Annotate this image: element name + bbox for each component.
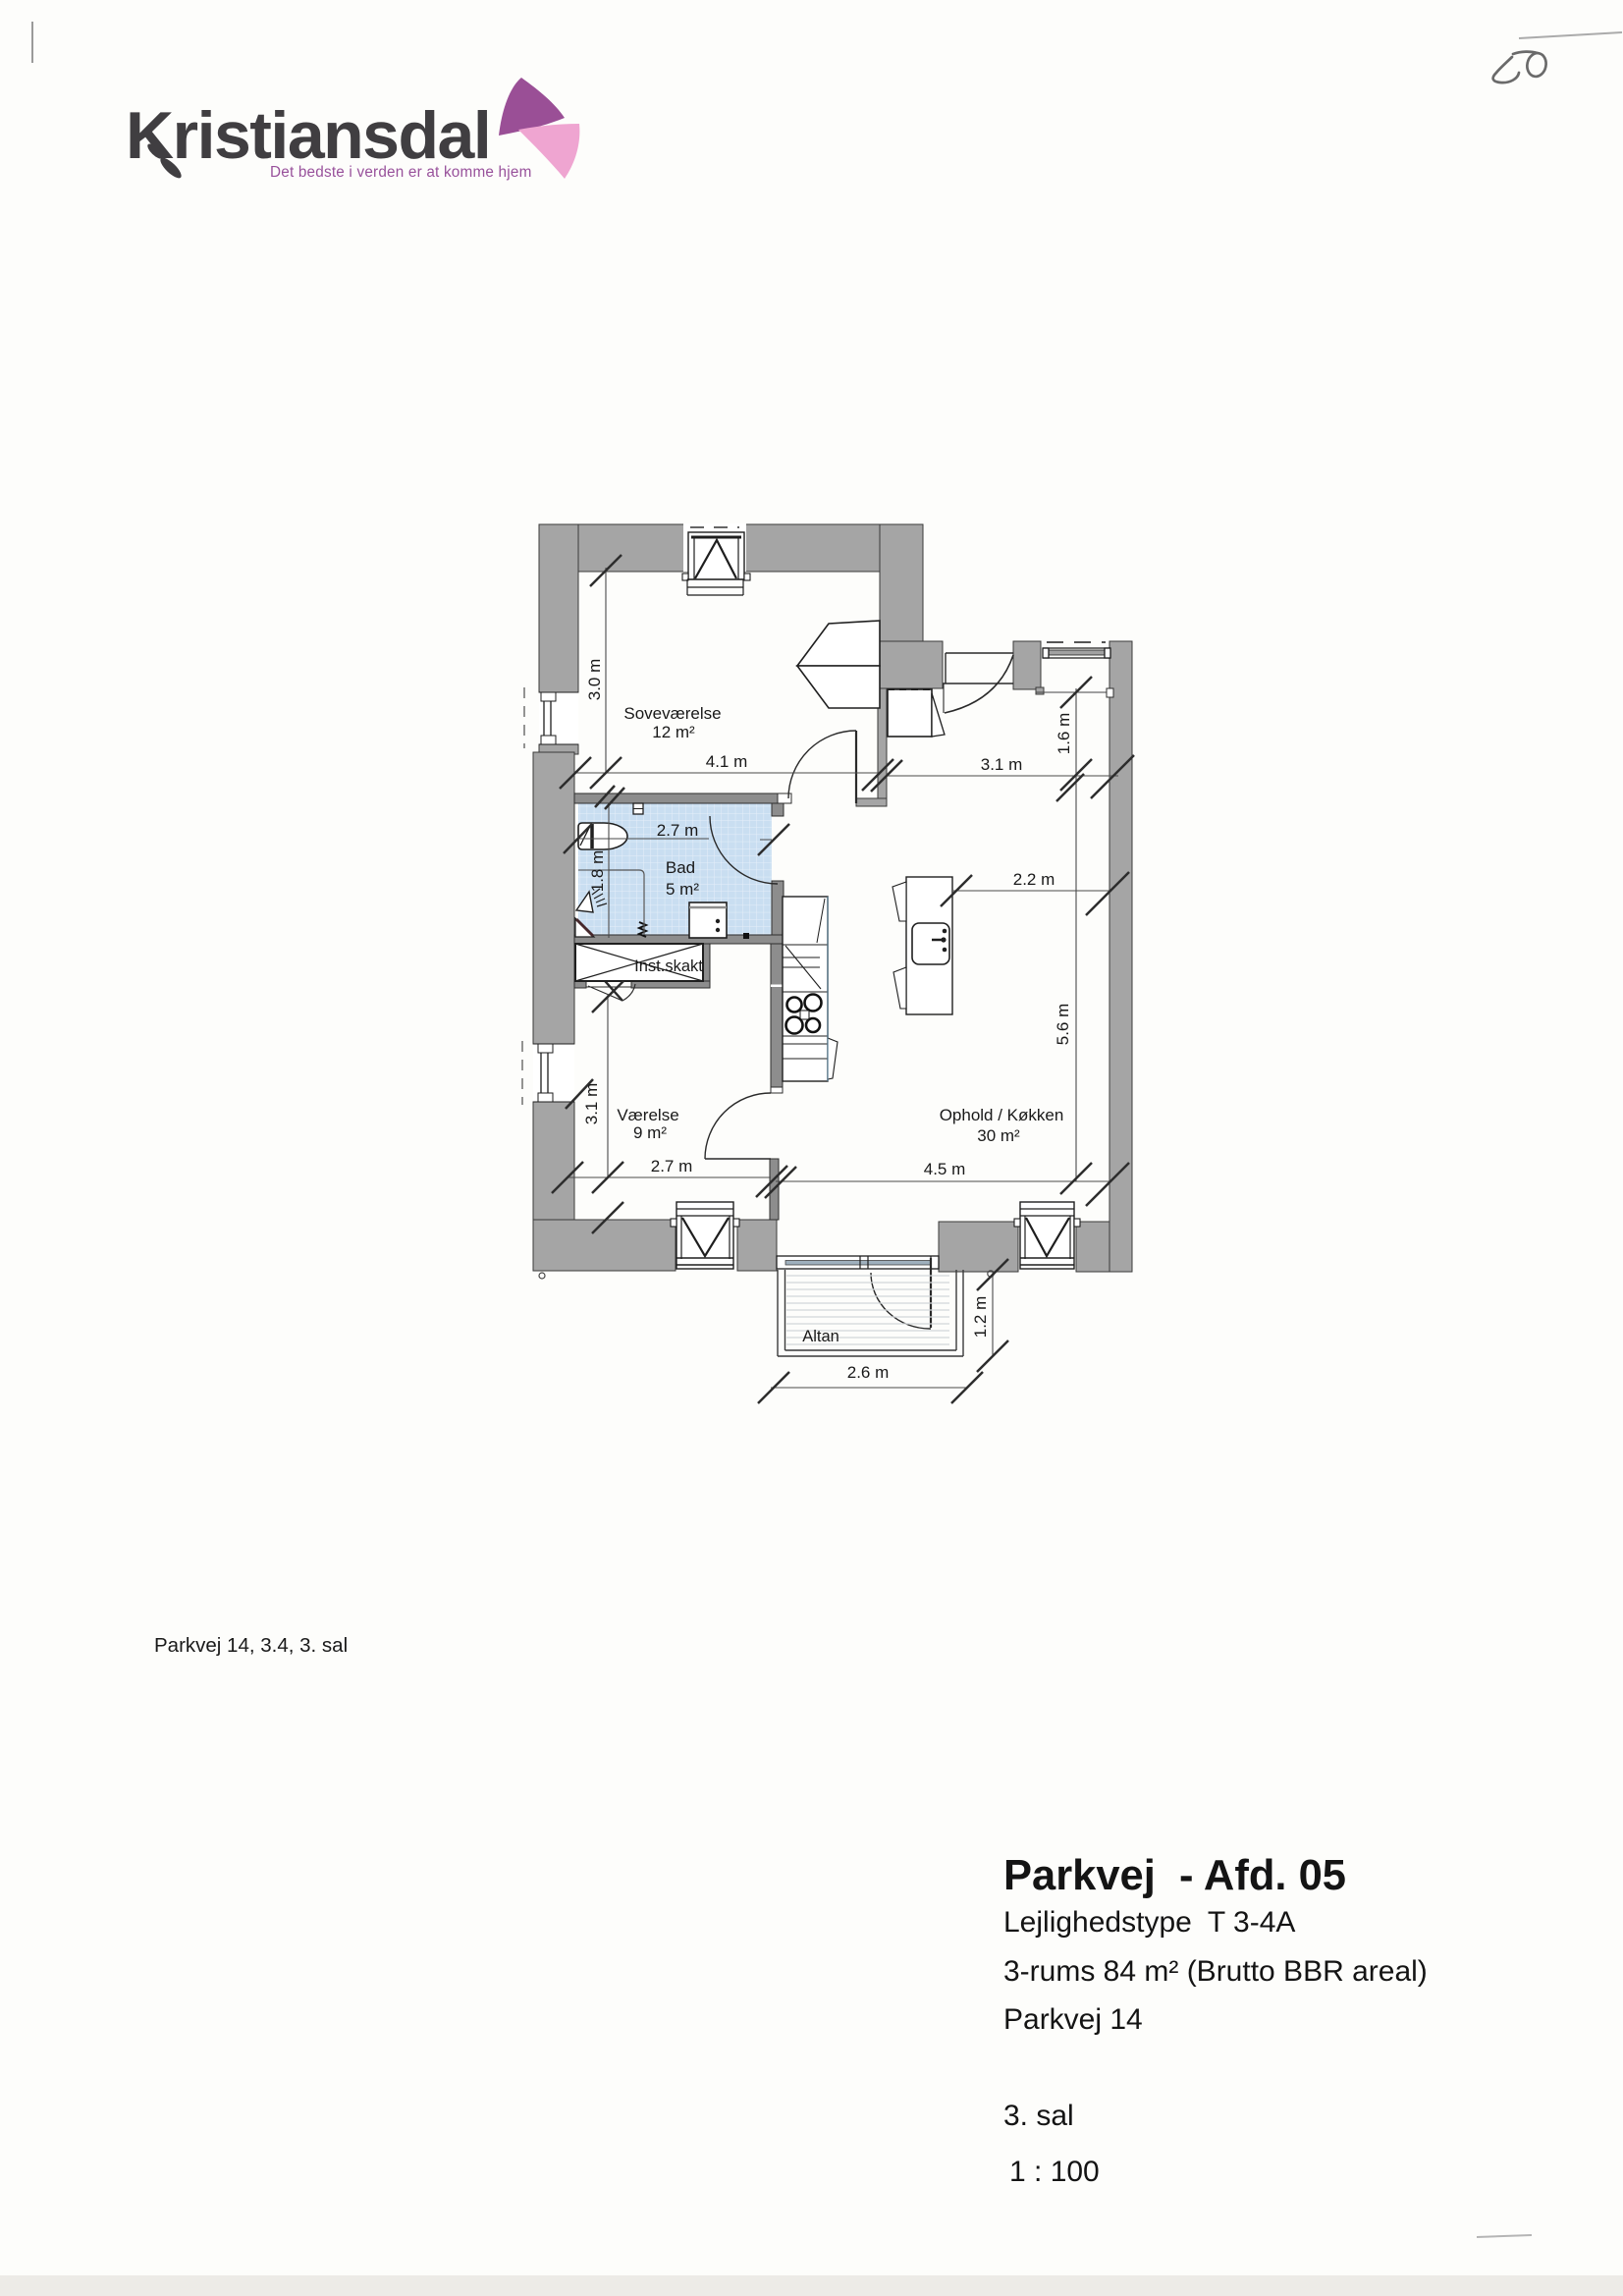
svg-text:Parkvej 14: Parkvej 14 bbox=[1003, 2003, 1143, 2036]
svg-text:Bad: Bad bbox=[666, 858, 695, 877]
svg-text:3.0 m: 3.0 m bbox=[585, 659, 604, 701]
svg-text:1.6 m: 1.6 m bbox=[1055, 713, 1073, 755]
svg-text:Værelse: Værelse bbox=[617, 1106, 678, 1124]
svg-text:1.8 m: 1.8 m bbox=[588, 850, 607, 893]
svg-text:3-rums 84 m² (Brutto BBR areal: 3-rums 84 m² (Brutto BBR areal) bbox=[1003, 1955, 1428, 1988]
svg-text:2.7 m: 2.7 m bbox=[657, 821, 699, 840]
svg-text:Det bedste i verden er at komm: Det bedste i verden er at komme hjem bbox=[270, 164, 532, 181]
svg-text:4.1 m: 4.1 m bbox=[706, 752, 748, 771]
svg-text:Parkvej - Afd. 05: Parkvej - Afd. 05 bbox=[1003, 1852, 1346, 1899]
svg-text:Soveværelse: Soveværelse bbox=[623, 704, 721, 723]
svg-text:12 m²: 12 m² bbox=[652, 723, 695, 741]
svg-text:1 : 100: 1 : 100 bbox=[1009, 2156, 1100, 2188]
svg-text:2.7 m: 2.7 m bbox=[651, 1157, 693, 1175]
svg-text:Inst.skakt: Inst.skakt bbox=[634, 957, 703, 975]
svg-text:2.6 m: 2.6 m bbox=[847, 1363, 890, 1382]
svg-text:2.2 m: 2.2 m bbox=[1013, 870, 1055, 889]
svg-text:Ophold / Køkken: Ophold / Køkken bbox=[940, 1106, 1064, 1124]
svg-text:Kristiansdal: Kristiansdal bbox=[126, 98, 490, 173]
svg-text:Parkvej 14, 3.4, 3. sal: Parkvej 14, 3.4, 3. sal bbox=[154, 1634, 348, 1657]
svg-text:5 m²: 5 m² bbox=[666, 880, 699, 899]
svg-text:Altan: Altan bbox=[802, 1328, 839, 1345]
svg-text:Lejlighedstype T 3-4A: Lejlighedstype T 3-4A bbox=[1003, 1906, 1295, 1939]
svg-text:30 m²: 30 m² bbox=[977, 1126, 1020, 1145]
svg-text:9 m²: 9 m² bbox=[633, 1123, 667, 1142]
svg-text:5.6 m: 5.6 m bbox=[1054, 1004, 1072, 1046]
svg-text:1.2 m: 1.2 m bbox=[971, 1296, 990, 1339]
svg-text:4.5 m: 4.5 m bbox=[924, 1160, 966, 1178]
svg-text:3. sal: 3. sal bbox=[1003, 2100, 1074, 2132]
svg-text:3.1 m: 3.1 m bbox=[582, 1083, 601, 1125]
svg-text:3.1 m: 3.1 m bbox=[981, 755, 1023, 774]
